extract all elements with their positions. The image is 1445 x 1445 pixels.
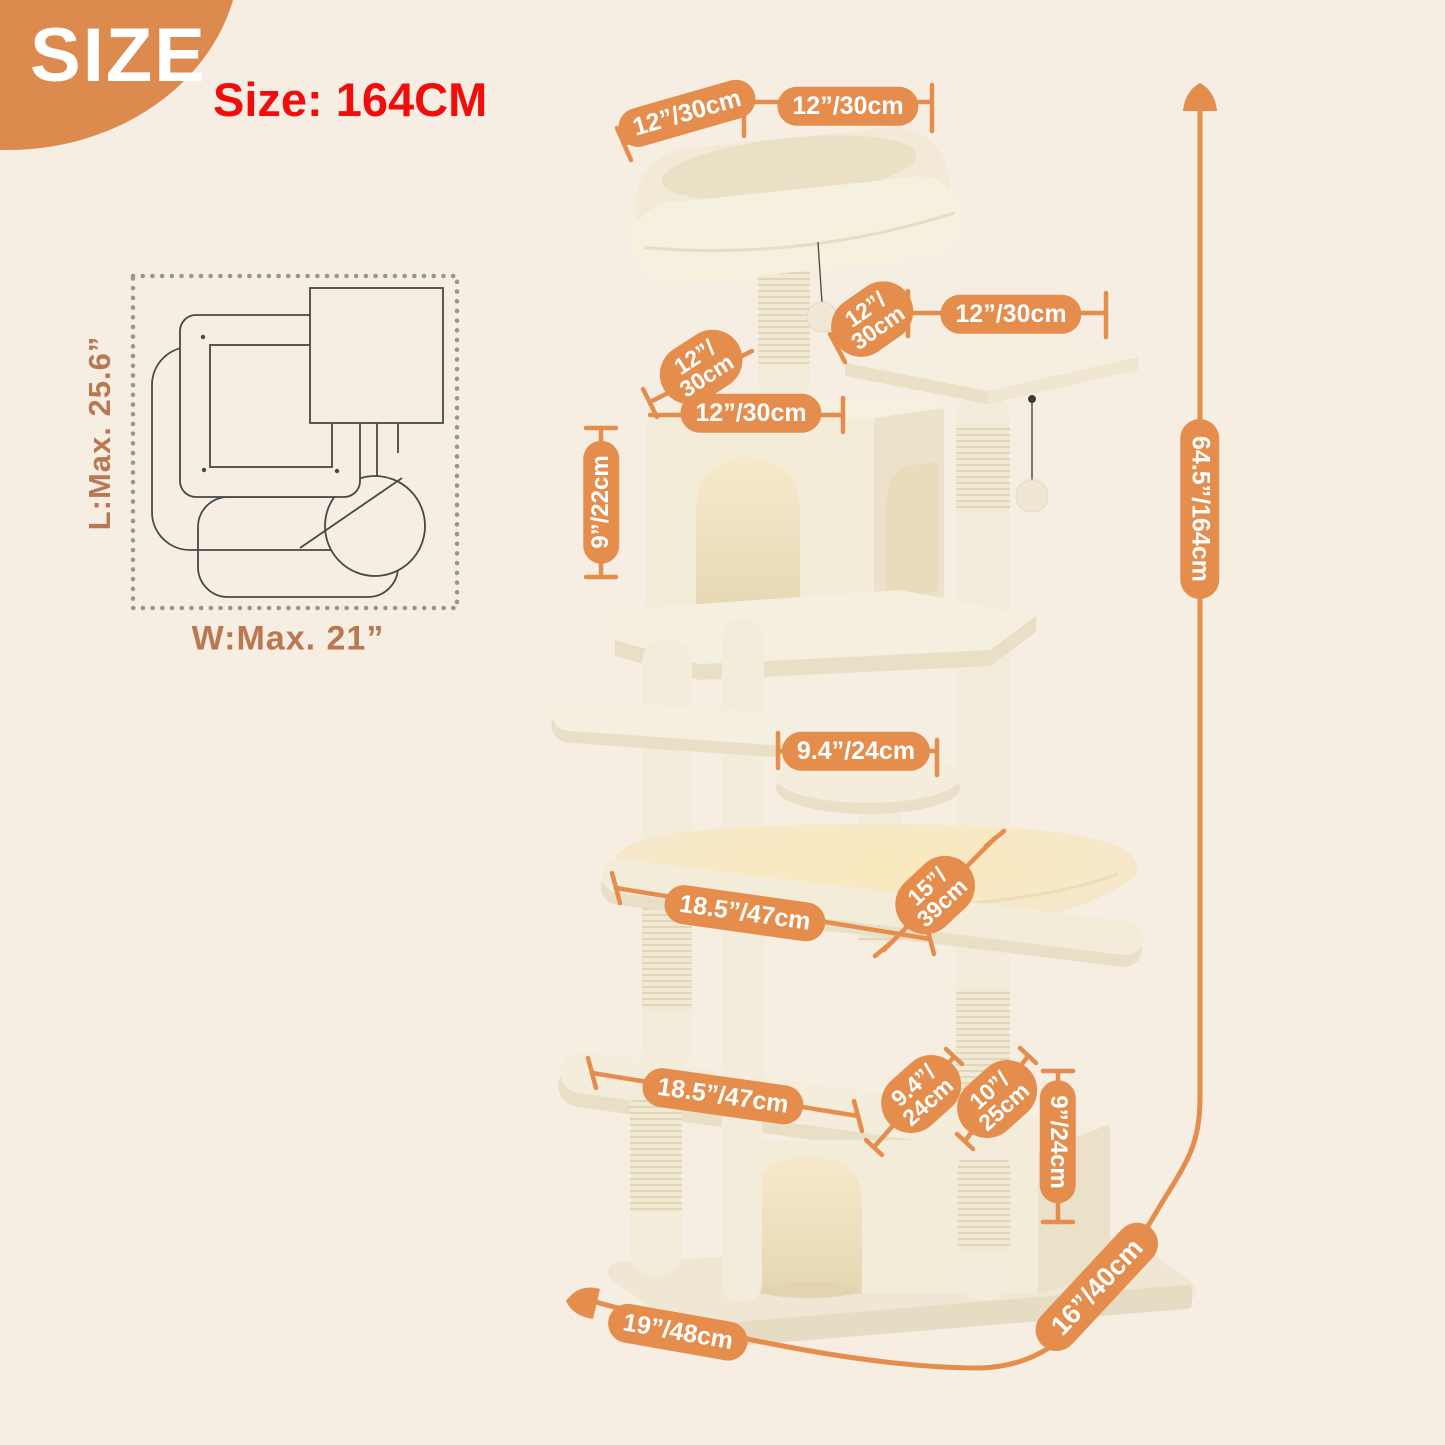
arrowhead-up xyxy=(1183,83,1217,111)
size-infographic: SIZE Size: 164CM L:Max. 25.6” W:Max. 21”… xyxy=(0,0,1445,1445)
dim-condo-height: 9”/22cm xyxy=(583,440,619,563)
dim-perch-front: 12”/30cm xyxy=(777,87,918,126)
pompom-toy xyxy=(1016,480,1048,512)
scene-graphics xyxy=(0,0,1445,1445)
dim-stool-width: 9.4”/24cm xyxy=(782,732,930,771)
arrowhead-left xyxy=(566,1288,600,1320)
dim-platform-front: 12”/30cm xyxy=(940,295,1081,334)
top-view-drawing xyxy=(133,276,457,608)
max-length-label: L:Max. 25.6” xyxy=(82,336,118,531)
overall-size-text: Size: 164CM xyxy=(213,72,487,127)
dim-condo-front: 12”/30cm xyxy=(680,394,821,433)
dim-total-height: 64.5”/164cm xyxy=(1181,419,1220,599)
dim-base-height: 9”/24cm xyxy=(1040,1080,1076,1203)
max-width-label: W:Max. 21” xyxy=(192,620,385,659)
top-perch xyxy=(623,121,965,289)
size-badge: SIZE xyxy=(30,12,207,99)
